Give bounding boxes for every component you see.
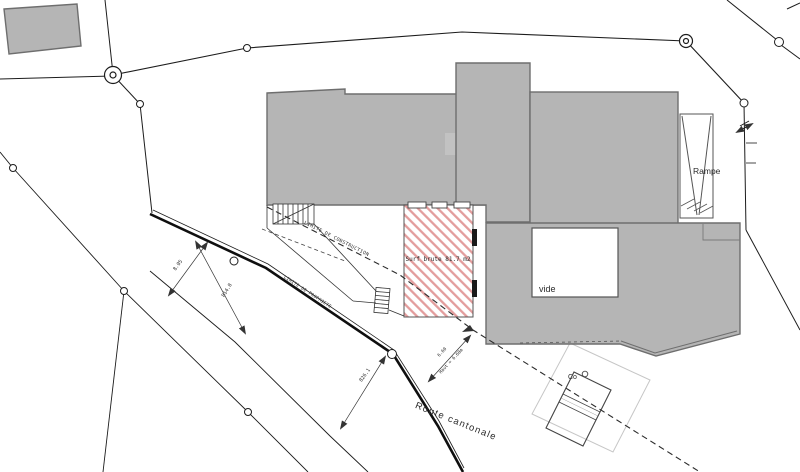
stair-small <box>374 287 390 313</box>
site-plan-drawing: vide Surf brute 81.7 m2 <box>0 0 800 472</box>
building-right <box>530 92 678 228</box>
site-plan-canvas: vide Surf brute 81.7 m2 <box>0 0 800 472</box>
ramp-label: Rampe <box>693 166 721 176</box>
survey-point <box>245 409 252 416</box>
door-mark-lower <box>472 280 477 297</box>
building-tower <box>456 63 530 222</box>
survey-point <box>121 288 128 295</box>
window-tab <box>454 202 470 208</box>
window-tabs <box>408 202 470 208</box>
survey-point <box>10 165 17 172</box>
survey-point-center <box>110 72 116 78</box>
survey-point <box>388 350 397 359</box>
window-tab <box>432 202 447 208</box>
survey-point <box>230 257 238 265</box>
survey-point <box>244 45 251 52</box>
co-label: Co <box>568 374 577 381</box>
door-mark-upper <box>472 229 477 246</box>
building-top-left <box>4 4 81 54</box>
surface-label: Surf brute 81.7 m2 <box>405 256 470 263</box>
survey-point-center <box>684 39 689 44</box>
window-tab <box>408 202 426 208</box>
void-label: vide <box>539 284 556 294</box>
survey-point <box>137 101 144 108</box>
stair-large <box>273 204 314 224</box>
survey-point <box>740 99 748 107</box>
survey-point <box>775 38 784 47</box>
